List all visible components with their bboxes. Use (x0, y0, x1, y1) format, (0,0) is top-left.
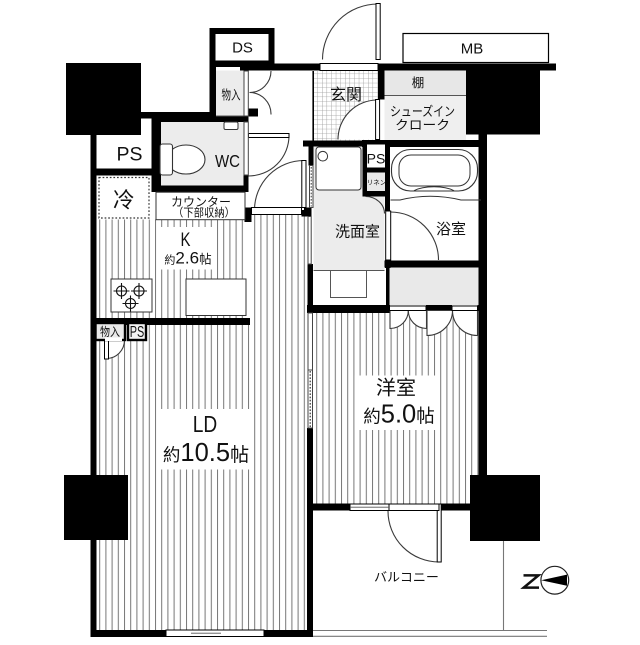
svg-text:物入: 物入 (222, 88, 241, 103)
svg-text:棚: 棚 (412, 75, 425, 90)
svg-text:DS: DS (232, 40, 253, 57)
svg-text:LD: LD (193, 411, 218, 437)
svg-text:PS: PS (130, 324, 145, 341)
svg-text:バルコニー: バルコニー (374, 571, 439, 585)
svg-text:クローク: クローク (395, 118, 450, 133)
svg-text:PS: PS (367, 151, 386, 167)
svg-text:玄関: 玄関 (330, 86, 362, 104)
svg-text:MB: MB (461, 41, 484, 58)
svg-text:リネン: リネン (367, 179, 387, 187)
svg-text:WC: WC (215, 151, 240, 171)
svg-text:（下部収納）: （下部収納） (173, 206, 235, 220)
svg-text:洗面室: 洗面室 (335, 224, 380, 241)
svg-text:浴室: 浴室 (436, 221, 466, 238)
svg-text:洋室: 洋室 (376, 377, 416, 400)
svg-text:物入: 物入 (100, 325, 120, 339)
svg-text:PS: PS (116, 144, 142, 166)
svg-text:冷: 冷 (113, 189, 135, 213)
